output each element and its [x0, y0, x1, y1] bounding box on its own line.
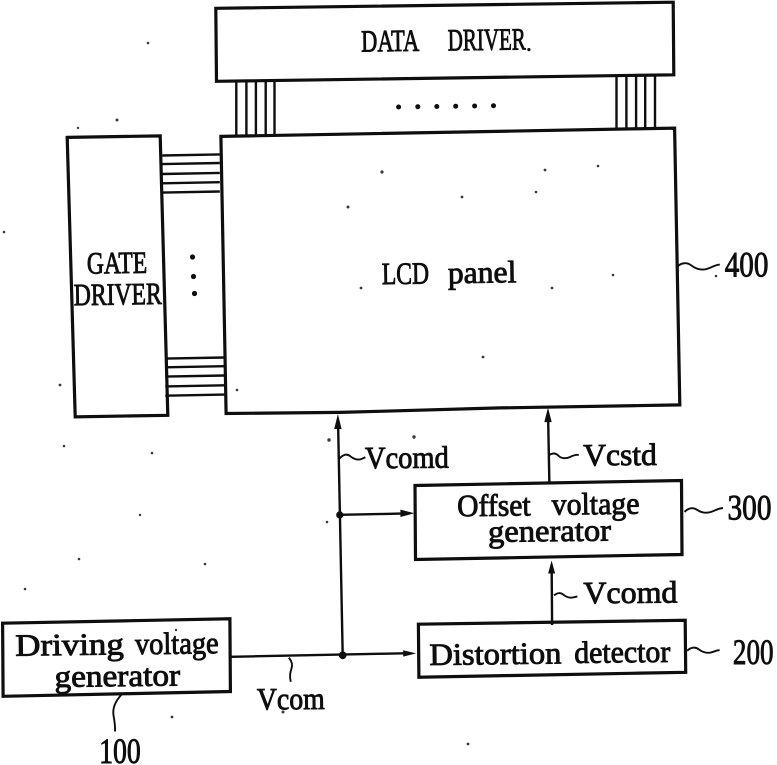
svg-text:300: 300 [728, 487, 772, 527]
svg-text:DRIVER: DRIVER [74, 276, 163, 312]
svg-text:Distortion: Distortion [429, 635, 562, 672]
svg-text:Driving: Driving [15, 626, 124, 662]
svg-text:generator: generator [54, 657, 181, 694]
svg-text:panel: panel [448, 254, 517, 290]
svg-text:detector: detector [574, 634, 671, 670]
svg-text:LCD: LCD [382, 256, 430, 292]
svg-text:GATE: GATE [87, 245, 148, 281]
svg-text:DRIVER: DRIVER [448, 21, 527, 57]
svg-text:DATA: DATA [361, 23, 420, 59]
svg-text:200: 200 [733, 632, 774, 672]
svg-text:100: 100 [99, 731, 141, 765]
svg-text:Vcom: Vcom [257, 681, 325, 717]
svg-text:400: 400 [725, 245, 769, 285]
svg-text:Vcomd: Vcomd [365, 440, 450, 476]
svg-text:Vcomd: Vcomd [583, 574, 678, 610]
svg-text:generator: generator [488, 512, 612, 549]
svg-text:Vcstd: Vcstd [583, 437, 657, 473]
svg-text:voltage: voltage [135, 625, 219, 661]
